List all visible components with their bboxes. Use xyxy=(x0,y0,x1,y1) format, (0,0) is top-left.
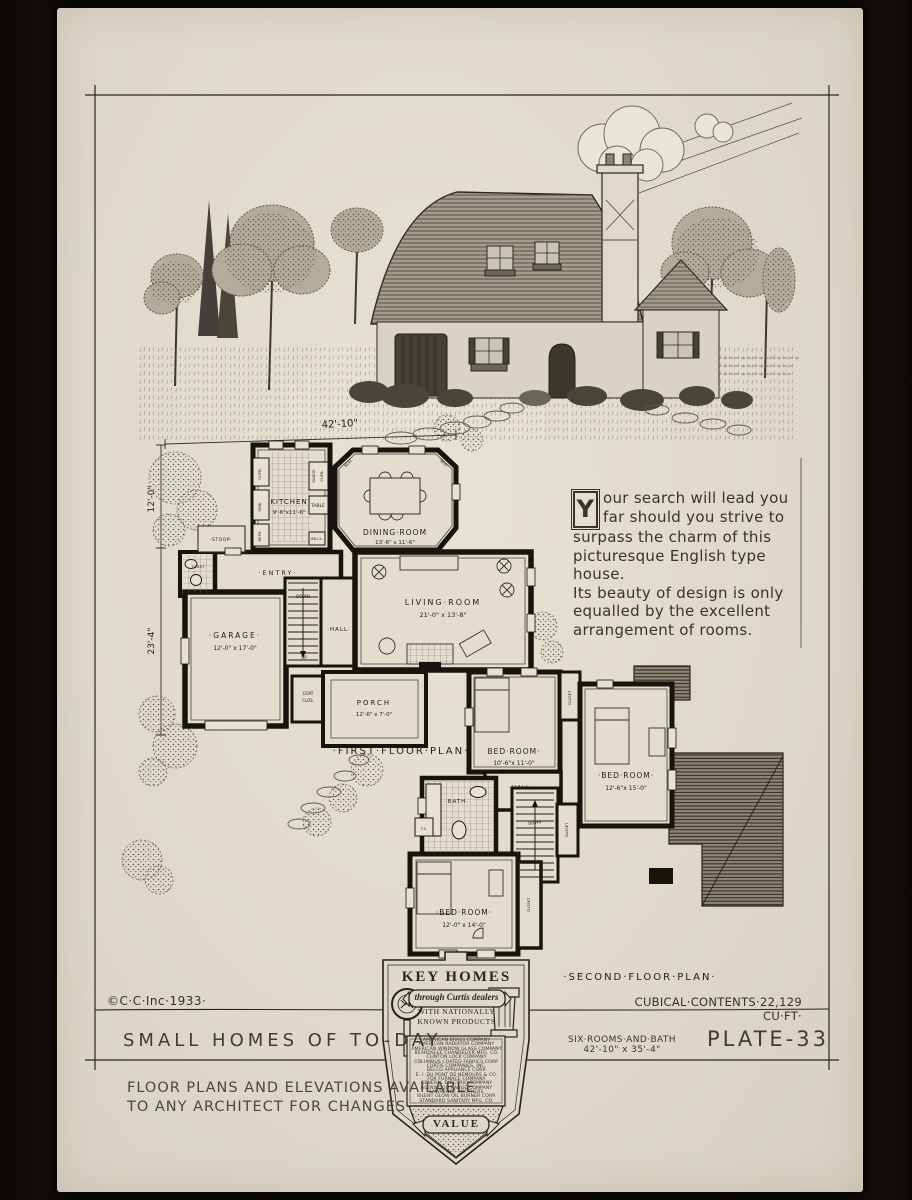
description-line: surpass the charm of this xyxy=(573,528,797,547)
room-label-living: LIVING·ROOM xyxy=(405,598,481,607)
label-hall-sf: ·HALL· xyxy=(509,785,533,791)
company-item: STANDARD SANITARY MFG. CO. xyxy=(404,1100,509,1104)
room-label-porch: PORCH xyxy=(357,699,391,707)
room-label-garage: ·GARAGE· xyxy=(209,631,261,640)
badge-subtitle-1: WITH NATIONALLY xyxy=(391,1007,522,1016)
room-label-bedroom2: ·BED·ROOM· xyxy=(598,771,654,780)
overall-size-line: 42'-10" x 35'-4" xyxy=(557,1045,687,1055)
room-size-kitchen: 9'-6"x11'-6" xyxy=(273,510,306,516)
dim-overall-width: 42'-10" xyxy=(321,418,358,431)
description-line: house. xyxy=(573,565,797,584)
room-label-bedroom1: BED·ROOM· xyxy=(488,747,541,756)
second-floor-title: ·SECOND·FLOOR·PLAN· xyxy=(563,972,716,983)
closet-label-top: CLOSET xyxy=(567,690,572,705)
room-label-kitchen: KITCHEN xyxy=(270,498,307,506)
plate-number: PLATE-33 xyxy=(707,1027,829,1051)
chimney xyxy=(597,154,643,322)
copyright-notice: ©C·C·Inc·1933· xyxy=(107,994,206,1008)
room-size-porch: 12'-6" x 7'-0" xyxy=(356,712,392,718)
badge-value-text: VALUE xyxy=(381,1118,532,1130)
room-size-bedroom1: 10'-6"x 11'-0" xyxy=(493,760,535,767)
description-line: far should you strive to xyxy=(573,508,797,527)
label-coat-2: CLOS. xyxy=(302,698,314,703)
label-down-ff: DOWN xyxy=(296,594,310,599)
rooms-summary: SIX·ROOMS·AND·BATH 42'-10" x 35'-4" xyxy=(557,1035,687,1055)
label-coat-1: COAT xyxy=(303,691,314,696)
closet-label-bed3: CLOSET xyxy=(526,897,531,912)
description-line: our search will lead you xyxy=(573,489,797,508)
dim-lower-left: 23'-4" xyxy=(147,627,157,654)
first-floor-title: ·FIRST·FLOOR·PLAN· xyxy=(333,746,470,757)
photographed-plate-page: 42'-10" 12'-0" 23'-4" xyxy=(0,0,912,1200)
fixture-range: RANGE xyxy=(311,469,316,483)
house-rendering xyxy=(137,103,802,444)
description-line: arrangement of rooms. xyxy=(573,621,797,640)
description-line: Its beauty of design is only xyxy=(573,584,797,603)
fixture-table: TABLE xyxy=(310,503,325,509)
fixture-cupboard-right: CUPB. xyxy=(319,470,324,482)
closet-label-mid: CLOSET xyxy=(564,822,569,837)
rooms-count-line: SIX·ROOMS·AND·BATH xyxy=(557,1035,687,1045)
label-up-ff: UP xyxy=(301,655,307,660)
badge-company-list: AMERICAN BRASS COMPANY AMERICAN RADIATOR… xyxy=(404,1039,509,1104)
badge-subtitle-2: KNOWN PRODUCTS xyxy=(391,1017,522,1026)
room-size-bedroom3: 12'-0" x 14'-0" xyxy=(442,922,486,929)
description-paragraph: Y our search will lead you far should yo… xyxy=(573,489,797,639)
cubical-contents: CUBICAL·CONTENTS·22,129 CU·FT· xyxy=(632,995,802,1023)
description-line: equalled by the excellent xyxy=(573,602,797,621)
label-bath: ·BATH· xyxy=(445,799,469,805)
paper-sheet: 42'-10" 12'-0" 23'-4" xyxy=(57,8,863,1192)
second-floor-plan: BED·ROOM· 10'-6"x 11'-0" CLOSET ·BED·ROO… xyxy=(406,666,783,983)
room-size-bedroom2: 12'-6"x 15'-0" xyxy=(605,785,647,792)
label-hall-ff: ·HALL· xyxy=(327,627,351,633)
label-stoop: ·STOOP· xyxy=(210,537,232,543)
series-title: SMALL HOMES OF TO-DAY xyxy=(123,1030,442,1051)
description-line: picturesque English type xyxy=(573,547,797,566)
room-size-garage: 12'-0" x 17'-0" xyxy=(213,645,257,652)
description-dropcap: Y xyxy=(573,491,598,528)
fixture-broom-closet: BR.CL. xyxy=(311,537,323,541)
fixture-refrigerator: REFR. xyxy=(257,531,262,542)
room-label-dining: DINING·ROOM xyxy=(363,528,427,537)
badge-banner-text: through Curtis dealers xyxy=(406,992,507,1002)
badge-title: KEY HOMES xyxy=(381,969,532,986)
label-entry: ·ENTRY· xyxy=(258,569,297,577)
room-size-dining: 13'-6" x 11'-6" xyxy=(375,540,415,546)
room-label-bedroom3: ·BED·ROOM· xyxy=(436,908,492,917)
label-toilet: TOILET xyxy=(190,564,205,569)
fixture-sink: SINK xyxy=(257,502,262,511)
fixture-cupboard-left: CUPB. xyxy=(257,468,262,480)
room-size-living: 21'-0" x 13'-8" xyxy=(419,611,466,619)
label-tc: T.C. xyxy=(420,827,428,831)
